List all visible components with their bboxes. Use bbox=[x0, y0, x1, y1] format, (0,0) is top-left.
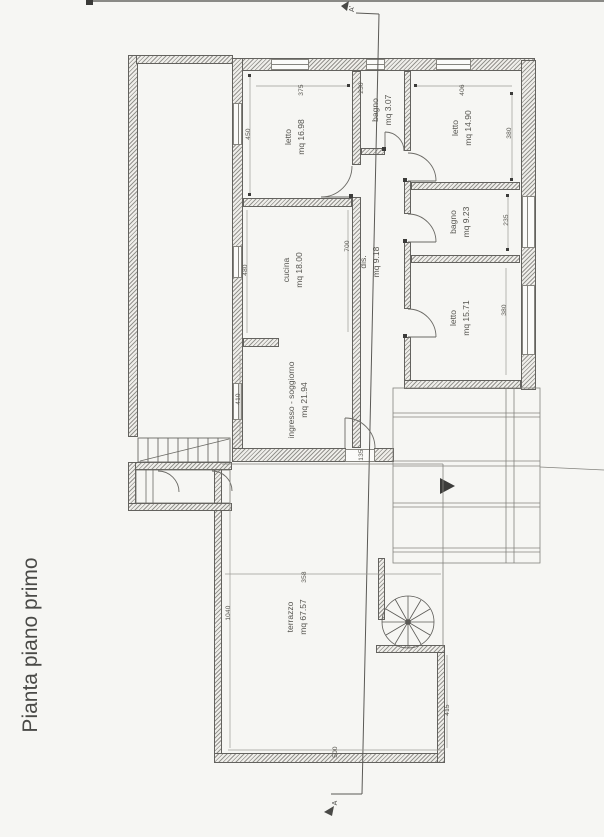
section-marker-bottom: A bbox=[330, 796, 340, 810]
dimension-label: 235 bbox=[501, 208, 511, 232]
dimension-label: 410 bbox=[233, 387, 243, 411]
staircase bbox=[138, 438, 230, 462]
dimension-label: 380 bbox=[504, 121, 514, 145]
spiral-staircase bbox=[382, 596, 434, 648]
roof-slope-panel bbox=[393, 388, 540, 563]
room-label-cucina: cucinamq 18.00 bbox=[280, 222, 306, 318]
dimension-label: 1040 bbox=[223, 601, 233, 625]
landing-rooms bbox=[136, 470, 230, 503]
room-label-bagno-1: bagnomq 3.07 bbox=[369, 62, 395, 158]
dimension-label: 500 bbox=[330, 740, 340, 764]
dimension-label: 415 bbox=[442, 698, 452, 722]
dimension-label: 135 bbox=[356, 443, 366, 467]
scanned-floor-plan-page: Pianta piano primo bbox=[0, 0, 604, 837]
dimension-label: 375 bbox=[296, 78, 306, 102]
slope-arrow-icon bbox=[440, 478, 455, 494]
terrace-boundary bbox=[222, 464, 604, 648]
room-label-bagno-2: bagnomq 9.23 bbox=[447, 174, 473, 270]
section-marker-top: A' bbox=[347, 2, 357, 16]
room-label-ingresso-soggiorno: ingresso - soggiornomq 21.94 bbox=[285, 352, 311, 448]
room-label-letto-3: lettomq 15.71 bbox=[447, 270, 473, 366]
plan-title: Pianta piano primo bbox=[19, 535, 47, 755]
dimension-label: 358 bbox=[299, 565, 309, 589]
dimension-label: 380 bbox=[499, 298, 509, 322]
dimension-label: 406 bbox=[457, 78, 467, 102]
room-label-letto-1: lettomq 16.98 bbox=[282, 89, 308, 185]
dimension-label: 480 bbox=[240, 258, 250, 282]
room-label-dis: dis.mq 9.18 bbox=[357, 214, 383, 310]
dimension-label: 700 bbox=[342, 234, 352, 258]
dimension-label: 450 bbox=[243, 122, 253, 146]
dimension-label: 230 bbox=[356, 76, 366, 100]
